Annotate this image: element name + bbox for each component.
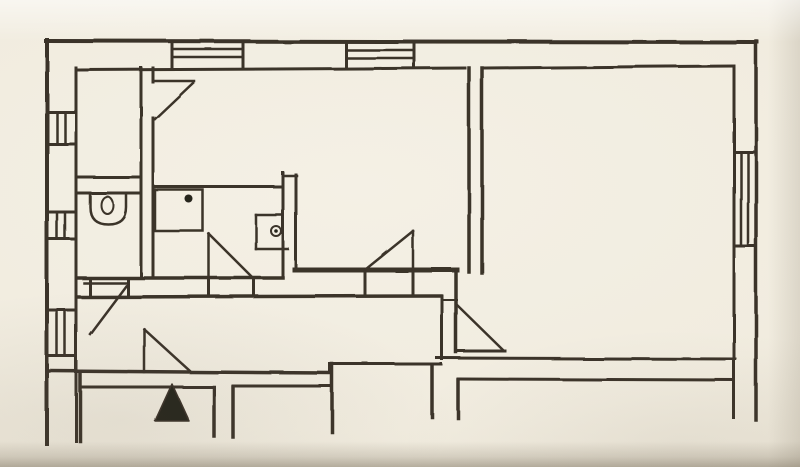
closet-door-swing [155,83,193,119]
inner-wall-top-left-span [78,68,465,70]
right-room-bottom-wall [437,358,735,359]
inner-wall-top-right-span [485,66,734,68]
entrance-arrow [155,384,189,421]
entrance-door-swing [144,329,191,372]
walls-layer [46,40,757,444]
bath-door-swing [209,234,252,277]
floor-plan-sketch-paper [0,0,800,467]
toilet-bowl-outline [90,193,126,224]
floor-plan-drawing [0,0,800,467]
living-door-swing [366,231,413,269]
basin-drain-dot [274,229,278,233]
toilet-seat-ellipse [101,197,113,214]
fixtures-layer [90,190,288,249]
right-room-door-swing [456,304,503,350]
bottom-right-room-top-wall [458,379,734,380]
wc-door-swing [90,286,126,334]
shower-tray [155,190,203,231]
entrance-marker-layer [155,384,189,421]
outer-wall-top [46,41,757,42]
corridor-top-wall [78,296,441,297]
shower-drain-dot [185,195,193,203]
